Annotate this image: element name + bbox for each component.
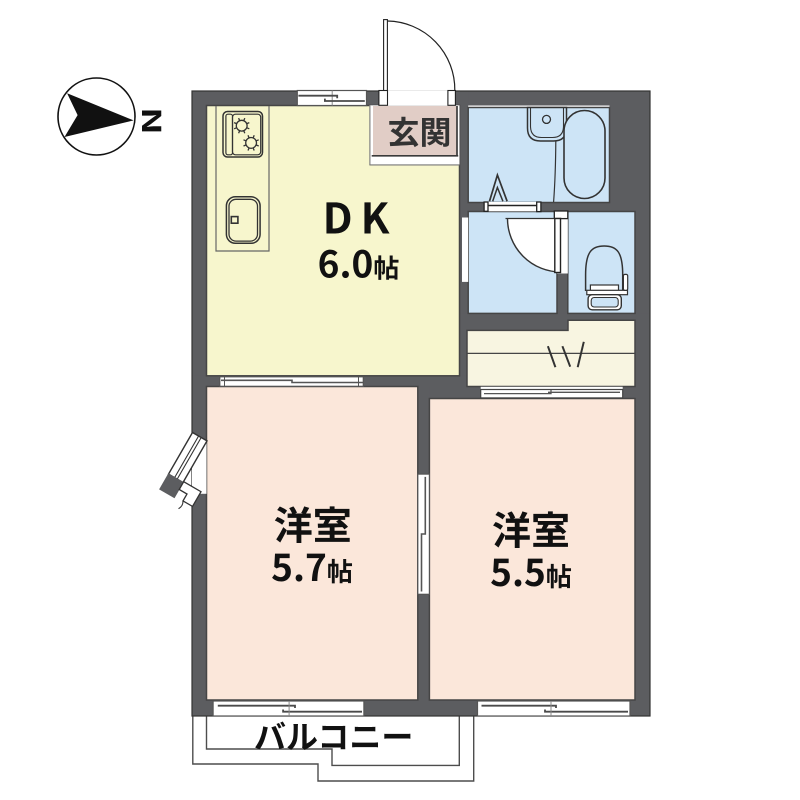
svg-text:バルコニー: バルコニー: [254, 713, 413, 759]
svg-text:玄関: 玄関: [387, 108, 451, 154]
svg-text:N: N: [134, 107, 171, 135]
